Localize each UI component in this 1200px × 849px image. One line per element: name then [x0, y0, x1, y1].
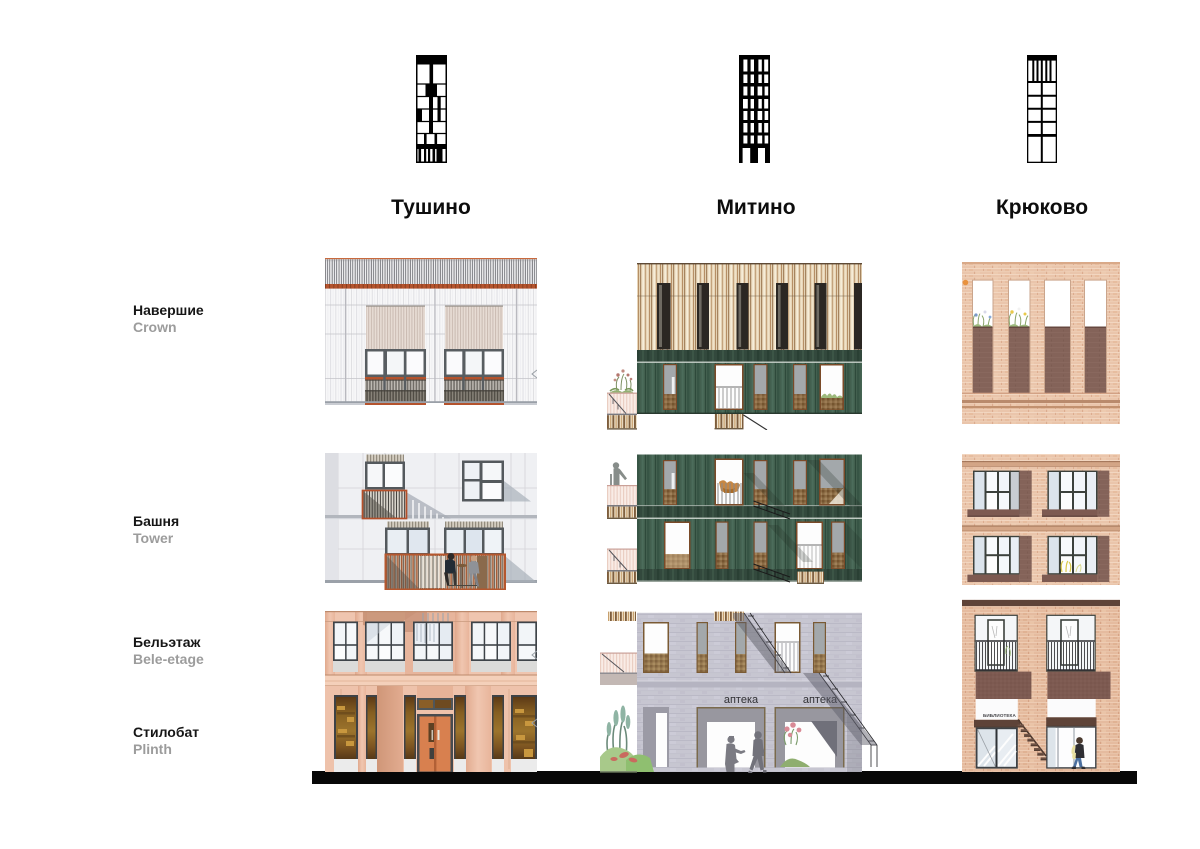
svg-text:БИБЛИОТЕКА: БИБЛИОТЕКА	[983, 713, 1016, 718]
svg-text:аптека: аптека	[724, 694, 759, 706]
